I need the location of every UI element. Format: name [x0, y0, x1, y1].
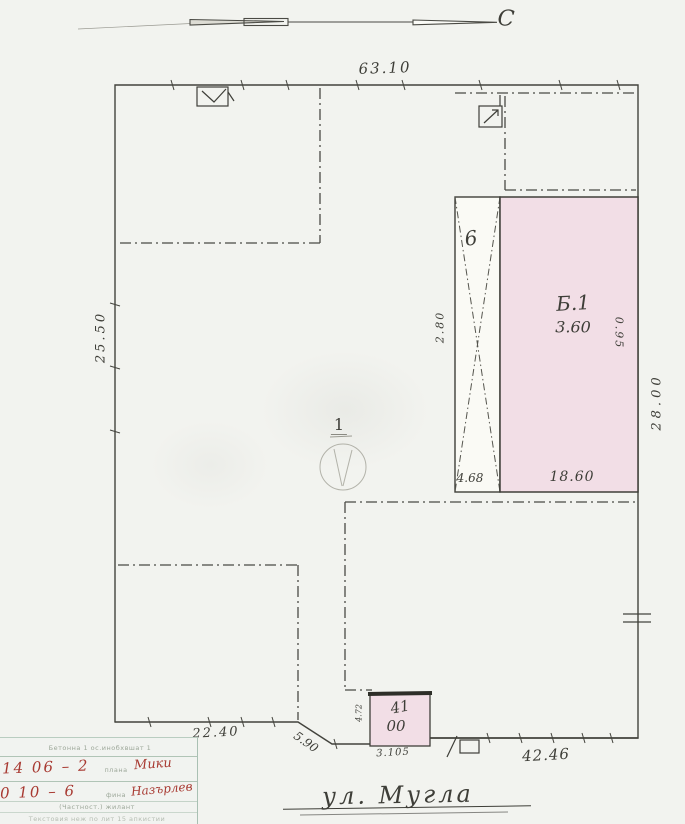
stamp-row1-caption: плана — [104, 766, 127, 774]
building-b1-dim-right: 0.95 — [613, 317, 626, 350]
scanned-site-plan: { "north": { "label": "С" }, "plot": { "… — [0, 0, 685, 823]
building-b1-label: Б.1 — [556, 290, 591, 316]
stamp-row1-name: Мики — [134, 756, 173, 774]
stamp-row3: (Частност.) жилант — [59, 803, 135, 811]
building-6-dim-left: 2.80 — [434, 311, 447, 344]
gate-symbol-icon — [447, 736, 479, 757]
boundary-marker — [623, 614, 651, 622]
stamp-rule — [0, 812, 197, 813]
small-building-dim-left: 4.72 — [355, 704, 364, 722]
plot-number: 1 — [331, 415, 347, 435]
stamp-header: Бетонна 1 ос.инобхвшат 1 — [49, 744, 152, 752]
dim-bottom-right: 42.46 — [522, 745, 571, 765]
north-label: С — [497, 6, 516, 32]
title-block-stamp: Бетонна 1 ос.инобхвшат 1 14 06 – 2 плана… — [0, 737, 198, 824]
dim-right: 28.00 — [650, 373, 665, 430]
building-b1-dim-bottom: 18.60 — [549, 469, 594, 485]
building-6-dim-bottom: 4.68 — [457, 471, 484, 485]
building-b1-height: 3.60 — [555, 318, 591, 337]
small-building-label-1: 41 — [389, 696, 411, 717]
stamp-row2-caption: фина — [106, 791, 126, 799]
stamp-row1-number: 14 06 – 2 — [2, 756, 90, 777]
plot-circle — [320, 436, 366, 490]
small-building-label-2: 00 — [386, 717, 405, 735]
dim-top: 63.10 — [358, 58, 412, 78]
small-building-dim-bottom: 3.105 — [376, 747, 410, 760]
entrance-arrow-icon — [479, 95, 502, 127]
dim-bottom-left: 22.40 — [192, 724, 240, 741]
stamp-row2-name: Назърлев — [131, 779, 194, 798]
well-symbol-icon — [197, 87, 234, 106]
dim-left: 25.50 — [94, 311, 109, 363]
site-plan-drawing — [0, 0, 685, 823]
stamp-row2-number: 0 10 – 6 — [0, 782, 76, 803]
north-arrow-icon — [78, 19, 497, 30]
stamp-row4: Текстовия неж по лит 15 апкистии — [29, 815, 166, 823]
building-6-label: 6 — [463, 225, 479, 251]
